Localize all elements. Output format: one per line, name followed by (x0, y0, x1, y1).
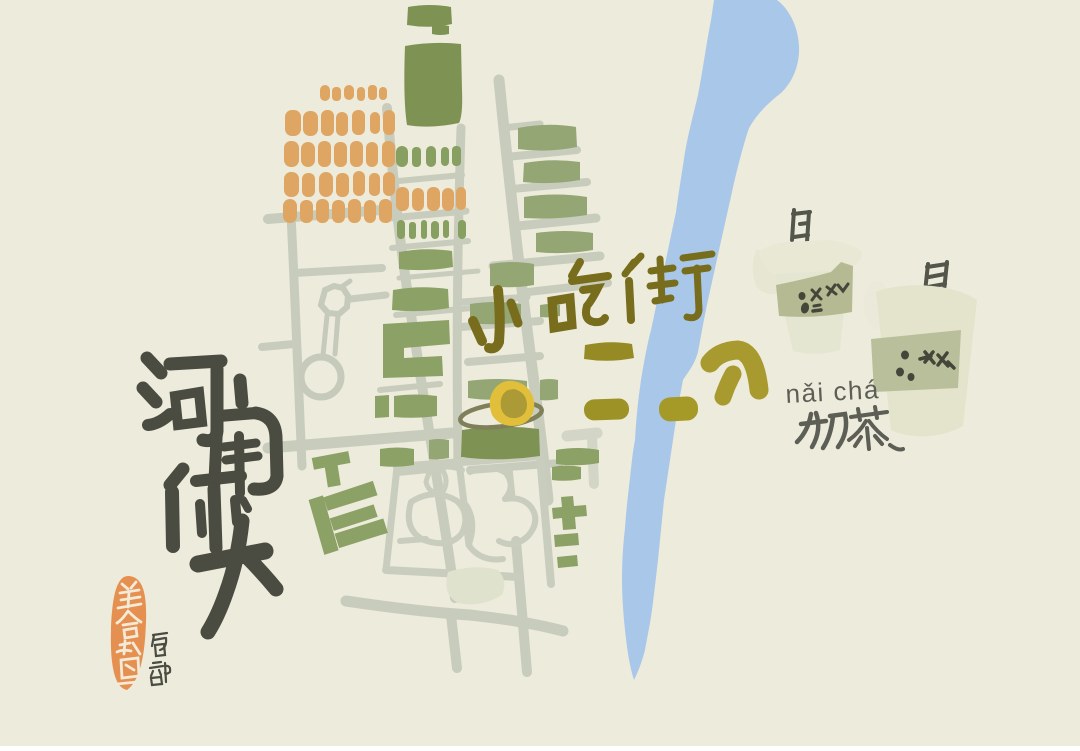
svg-text:nǎi chá: nǎi chá (785, 374, 881, 409)
